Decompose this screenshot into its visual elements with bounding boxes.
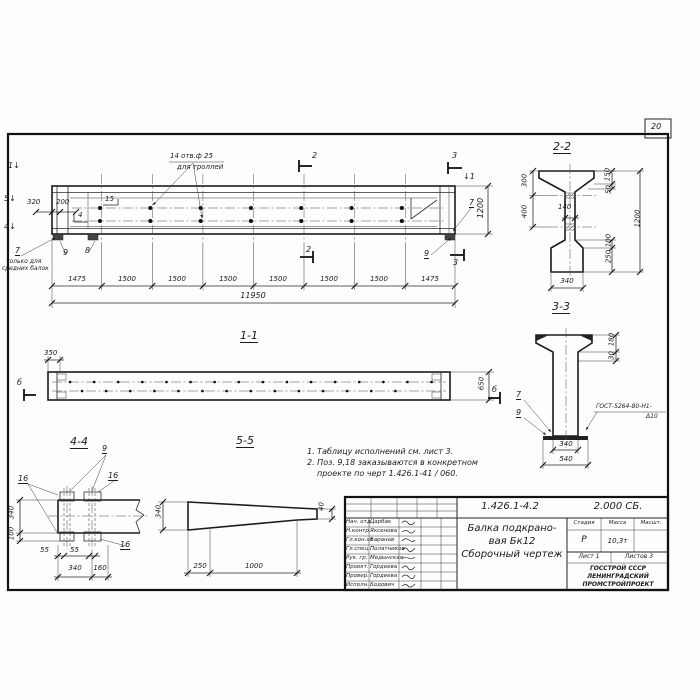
dim-340-plate: 340 (551, 441, 581, 448)
weld-note-line1: ГОСТ-5264-80-Н1- (596, 404, 652, 410)
dim-span: 1475 (63, 276, 91, 283)
tb-role: Н.контр. (346, 529, 371, 535)
tb-name: Медынская (370, 556, 403, 562)
tb-name: Царбак (370, 520, 391, 526)
tb-role: Провер. (346, 574, 369, 580)
dim-1200-main: 1200 (477, 194, 485, 222)
tb-role: Исполн. (346, 583, 369, 589)
cut-mark-2-top: 2 (312, 152, 317, 160)
dim-200: 200 (56, 199, 69, 206)
callout-4: 4 (78, 212, 82, 219)
section-title-2-2: 2-2 (553, 141, 571, 154)
callout-9-44: 9 (102, 445, 107, 454)
dim-400: 400 (522, 199, 529, 225)
section-title-3-3: 3-3 (552, 301, 570, 314)
callout-8: 8 (85, 247, 90, 255)
callout-7: 7 (15, 247, 20, 256)
callout-7-right: 7 (469, 199, 474, 208)
tb-name: Яксенова (370, 529, 397, 535)
dim-540: 540 (551, 456, 581, 463)
dim-340-wedge: 340 (156, 499, 163, 525)
drawing-linework (0, 0, 700, 700)
col-scale: Масшт. (635, 521, 667, 527)
col-stage: Стадия (568, 521, 600, 527)
section-arrow-4: 4↓ (4, 223, 16, 231)
dim-250: 250 (606, 246, 613, 268)
doc-number: 1.426.1-4.2 (460, 502, 560, 512)
callout-16-left: 16 (18, 475, 28, 484)
dim-340-bottom: 340 (61, 565, 89, 572)
dim-140: 140 (558, 204, 571, 211)
callout-9: 9 (63, 249, 68, 257)
callout-16-bottom: 16 (120, 541, 130, 550)
dim-250-wedge: 250 (188, 563, 212, 570)
note-line-2: 2. Поз. 9,18 заказываются в конкретном (307, 459, 478, 467)
page-number: 20 (651, 123, 661, 131)
holes-note-line1: 14 отв.ф 25 (170, 153, 213, 160)
tb-role: Нач. отд (346, 520, 371, 526)
view-mark-b-right: б (492, 386, 497, 394)
dim-650: 650 (479, 371, 486, 397)
section-arrow-1-right: ↓1 (463, 173, 475, 181)
callout-16-right: 16 (108, 472, 118, 481)
tb-role: Гл.спец. (346, 547, 370, 553)
note-line-3: проекте по черт 1.426.1-41 / 060. (317, 470, 458, 478)
doc-code: 2.000 СБ. (578, 502, 658, 512)
dim-span: 1500 (214, 276, 242, 283)
section-title-4-4: 4-4 (70, 436, 88, 449)
cut-mark-3-top: 3 (452, 152, 457, 160)
sheets-label: Листов 3 (613, 554, 665, 560)
dim-55-a: 55 (40, 547, 49, 554)
cut-mark-2-bottom: 2 (306, 246, 311, 254)
dim-160: 160 (88, 565, 112, 572)
dim-320: 320 (27, 199, 40, 206)
drawing-title-line3: Сборочный чертеж (459, 550, 565, 560)
org-line1: ГОССТРОЙ СССР (570, 566, 666, 572)
tb-name: Гордеева (370, 565, 397, 571)
stage-value: Р (568, 536, 600, 545)
tb-name: Баранов (370, 538, 394, 544)
tb-name: Полатников (370, 547, 405, 553)
tb-name: Бодович (370, 583, 394, 589)
dim-300: 300 (522, 168, 529, 194)
cut-mark-3-bottom: 3 (453, 259, 458, 267)
callout-9-right: 9 (424, 250, 429, 259)
section-title-1-1: 1-1 (240, 330, 258, 343)
dim-350: 350 (44, 350, 57, 357)
section-arrow-5: 5↓ (4, 195, 16, 203)
tb-role: Проект. (346, 565, 369, 571)
callout-15: 15 (105, 196, 114, 203)
drawing-title-line2: вая Бк12 (459, 537, 565, 547)
note-7-line2: средних балок (2, 266, 49, 272)
dim-40: 40 (319, 498, 326, 516)
col-mass: Масса (602, 521, 633, 527)
holes-note-line2: для троллей (177, 164, 223, 171)
dim-span: 1500 (113, 276, 141, 283)
weld-note-line2: Δ10 (646, 414, 658, 420)
dim-total-11950: 11950 (233, 292, 273, 300)
tb-name: Гордеева (370, 574, 397, 580)
sheet-label: Лист 1 (569, 554, 609, 560)
section-arrow-1: 1↓ (8, 162, 20, 170)
org-line3: ПРОМСТРОЙПРОЕКТ (570, 582, 666, 588)
drawing-sheet: 20 1↓ 5↓ 4↓ 320 200 15 4 14 отв.ф 25 для… (0, 0, 700, 700)
mass-value: 10,3т (602, 538, 633, 545)
dim-100-left: 100 (9, 522, 16, 546)
dim-340-foot: 340 (552, 278, 582, 285)
dim-55-b: 55 (70, 547, 79, 554)
callout-7-section: 7 (516, 391, 521, 400)
dim-span: 1500 (264, 276, 292, 283)
section-title-5-5: 5-5 (236, 435, 254, 448)
drawing-title-line1: Балка подкрано- (459, 524, 565, 534)
dim-50: 50 (606, 180, 613, 200)
dim-span: 1475 (416, 276, 444, 283)
tb-role: Рук. гр. (346, 556, 368, 562)
org-line2: ЛЕНИНГРАДСКИЙ (570, 574, 666, 580)
dim-1000: 1000 (237, 563, 271, 570)
tb-role: Гл.кон.от (346, 538, 373, 544)
view-mark-b-left: б (17, 379, 22, 387)
dim-1200-section: 1200 (635, 205, 642, 233)
dim-span: 1500 (365, 276, 393, 283)
dim-30: 30 (609, 347, 616, 365)
dim-span: 1500 (315, 276, 343, 283)
callout-9-section: 9 (516, 409, 521, 418)
dim-span: 1500 (163, 276, 191, 283)
note-line-1: 1. Таблицу исполнений см. лист 3. (307, 448, 453, 456)
